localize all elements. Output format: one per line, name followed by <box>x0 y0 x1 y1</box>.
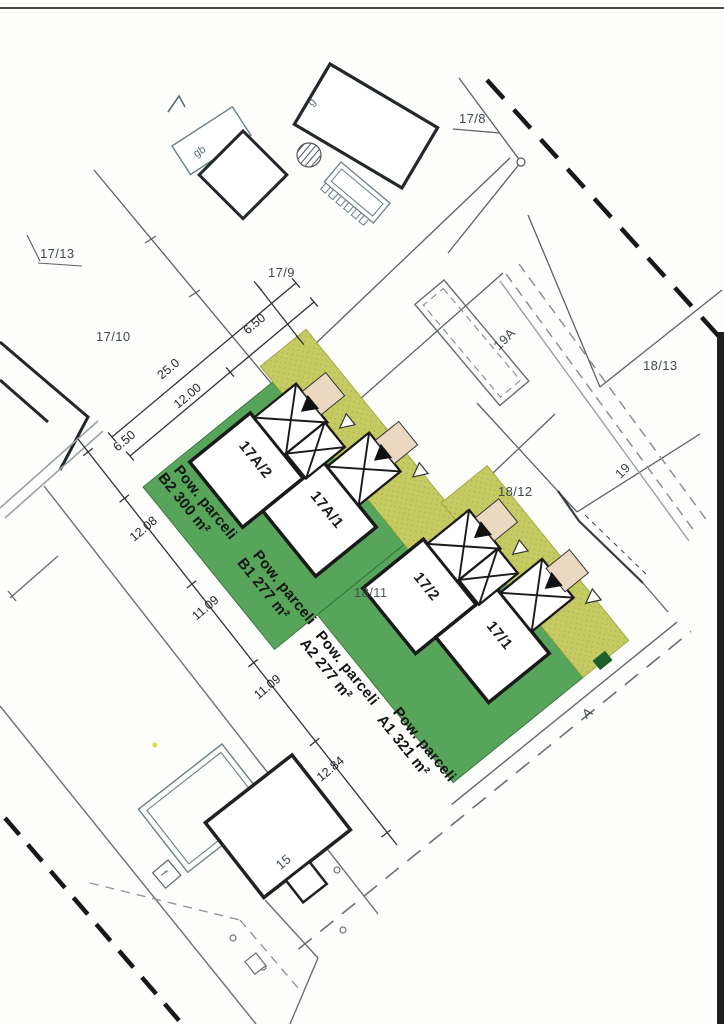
dim-650-front: 6.50 <box>111 428 139 454</box>
yellow-survey-dot <box>153 743 158 748</box>
shed-f: f <box>153 860 181 888</box>
parcel-label-18-11: 18/11 <box>354 585 388 600</box>
dim-1109a: 11.09 <box>189 593 221 623</box>
building-15 <box>205 755 367 920</box>
dim-25: 25.0 <box>155 356 183 382</box>
left-retaining-band <box>0 421 103 518</box>
dim-1109b: 11.09 <box>251 672 283 702</box>
entrance-arrow-icon <box>168 96 185 112</box>
site-plan-page: gb g <box>0 0 724 1024</box>
dim-1208: 12.08 <box>127 513 160 544</box>
development-group: 17A/2 17A/1 17/2 17/1 Pow. parceli B2 30… <box>0 261 691 950</box>
boundary-junction-point <box>517 158 525 166</box>
parcel-label-19a: 19A <box>490 325 518 353</box>
left-building-walls <box>0 342 88 470</box>
hatched-well-icon <box>297 143 321 167</box>
site-plan-drawing: gb g <box>0 0 724 1024</box>
scan-right-edge <box>717 332 724 1024</box>
building-19a-outline <box>415 280 529 406</box>
dashed-boundary-bottomleft <box>5 818 182 1024</box>
road-dashed-edges <box>90 883 298 988</box>
dim-650-top: 6.50 <box>241 311 269 337</box>
parcel-label-17-10: 17/10 <box>96 329 131 344</box>
parcel-label-17-9: 17/9 <box>268 265 295 280</box>
large-building <box>294 64 437 188</box>
parcel-label-18-13: 18/13 <box>643 358 678 373</box>
dim-12: 12.00 <box>171 380 204 411</box>
parcel-label-18-12: 18/12 <box>498 484 533 499</box>
small-road-structure <box>245 953 266 974</box>
dim-1284: 12.84 <box>314 753 347 784</box>
driveway-dashed-band <box>500 264 708 541</box>
parcel-label-17-8-underline <box>453 129 500 133</box>
parcel-label-17-8: 17/8 <box>459 111 486 126</box>
dashed-boundary-topright <box>487 80 724 342</box>
parcel-label-17-13: 17/13 <box>40 246 75 261</box>
